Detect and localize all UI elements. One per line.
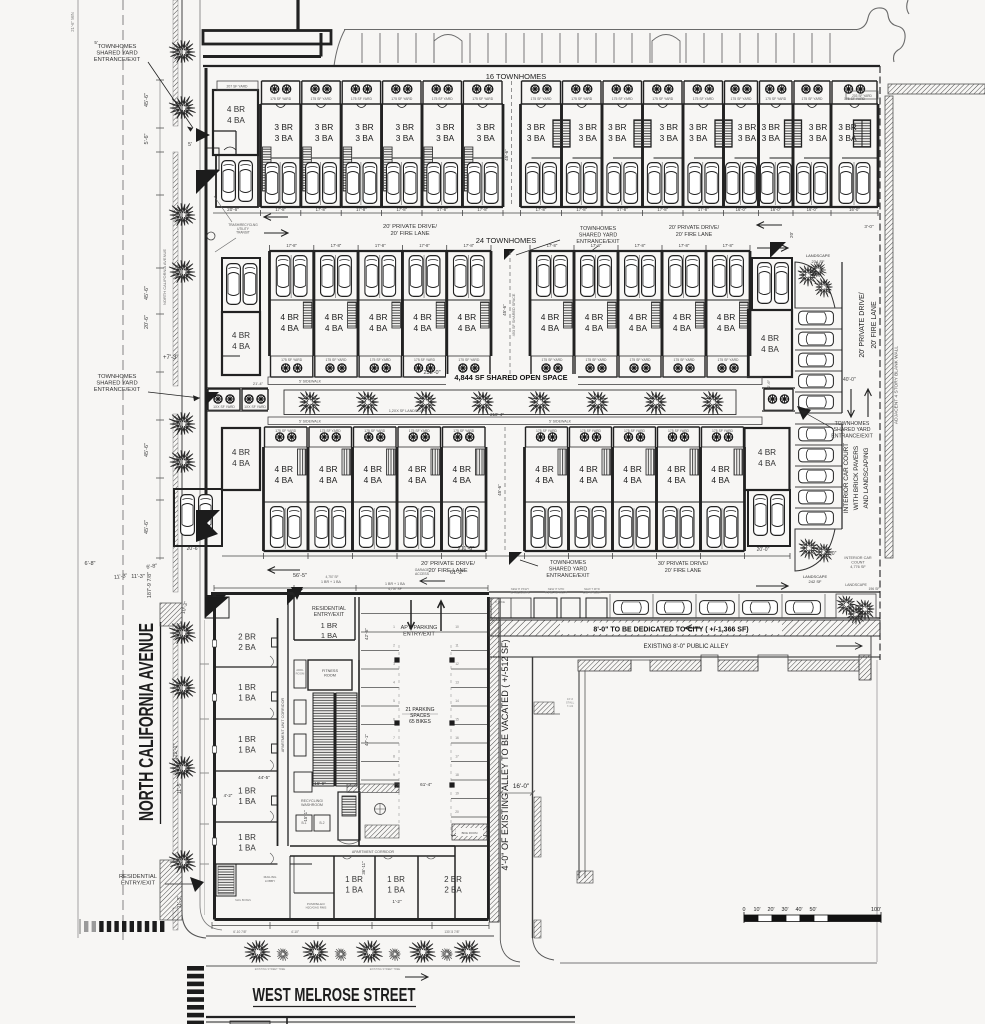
svg-text:WITH BRICK PAVERS: WITH BRICK PAVERS bbox=[853, 446, 860, 510]
svg-text:20'-6": 20'-6" bbox=[187, 546, 200, 552]
svg-text:175 SF YARD: 175 SF YARD bbox=[432, 97, 454, 101]
svg-text:1 BA: 1 BA bbox=[238, 694, 256, 703]
svg-text:3 BR: 3 BR bbox=[809, 122, 828, 132]
svg-text:56'-5": 56'-5" bbox=[293, 573, 307, 579]
svg-text:493 SF SHARED SPACE: 493 SF SHARED SPACE bbox=[512, 293, 516, 336]
svg-text:175 SF YARD: 175 SF YARD bbox=[586, 358, 608, 362]
svg-text:17'-8": 17'-8" bbox=[464, 243, 475, 248]
svg-text:16'-0": 16'-0" bbox=[849, 207, 860, 212]
svg-text:EXISTING STREET TREE: EXISTING STREET TREE bbox=[370, 967, 401, 971]
svg-text:APARTMENT UNIT CORRIDOR: APARTMENT UNIT CORRIDOR bbox=[281, 697, 285, 752]
svg-text:EMPTY SLOT: EMPTY SLOT bbox=[583, 590, 601, 594]
svg-text:8: 8 bbox=[393, 755, 395, 759]
svg-text:17'-8": 17'-8" bbox=[275, 207, 286, 212]
svg-text:175 SF YARD: 175 SF YARD bbox=[674, 358, 696, 362]
svg-text:44'-5": 44'-5" bbox=[258, 775, 270, 780]
svg-text:4 BR: 4 BR bbox=[541, 312, 560, 322]
svg-text:COUNT: COUNT bbox=[851, 560, 865, 564]
svg-text:1 BA: 1 BA bbox=[238, 746, 256, 755]
svg-text:4 BR: 4 BR bbox=[319, 464, 338, 474]
svg-text:NORTH CALIFORNIA AVENUE: NORTH CALIFORNIA AVENUE bbox=[162, 249, 167, 305]
svg-text:4 BR: 4 BR bbox=[232, 448, 250, 457]
svg-text:175 SF YARD: 175 SF YARD bbox=[458, 358, 480, 362]
svg-text:61'-4": 61'-4" bbox=[420, 782, 432, 787]
svg-text:4 BA: 4 BA bbox=[673, 323, 692, 333]
svg-text:11: 11 bbox=[455, 644, 459, 648]
svg-text:20'-0": 20'-0" bbox=[757, 547, 770, 553]
svg-text:130'-5 7/8": 130'-5 7/8" bbox=[444, 930, 459, 934]
svg-text:15: 15 bbox=[455, 718, 459, 722]
svg-text:4 BR: 4 BR bbox=[274, 464, 293, 474]
svg-text:1 BA: 1 BA bbox=[238, 844, 256, 853]
svg-text:4,776 SF: 4,776 SF bbox=[850, 565, 866, 569]
svg-text:2 BA: 2 BA bbox=[444, 886, 462, 895]
svg-text:175 SF YARD: 175 SF YARD bbox=[731, 97, 753, 101]
svg-text:4 BR: 4 BR bbox=[758, 448, 776, 457]
svg-text:17'-8": 17'-8" bbox=[617, 207, 628, 212]
svg-text:INTERIOR CAR: INTERIOR CAR bbox=[844, 556, 871, 560]
svg-text:4'-2": 4'-2" bbox=[224, 793, 233, 798]
svg-text:7-1/2: 7-1/2 bbox=[567, 704, 574, 708]
svg-text:175 SF YARD: 175 SF YARD bbox=[668, 429, 690, 433]
svg-text:20' PRIVATE DRIVE/: 20' PRIVATE DRIVE/ bbox=[421, 561, 475, 567]
svg-text:175 SF YARD: 175 SF YARD bbox=[718, 358, 740, 362]
svg-text:3 BA: 3 BA bbox=[809, 133, 828, 143]
svg-text:4 BR: 4 BR bbox=[629, 312, 648, 322]
svg-text:4,844 SF SHARED OPEN SPACE: 4,844 SF SHARED OPEN SPACE bbox=[454, 373, 567, 382]
svg-text:1 BA: 1 BA bbox=[345, 886, 363, 895]
svg-text:SHARED YARD: SHARED YARD bbox=[96, 51, 137, 57]
svg-text:5': 5' bbox=[188, 142, 192, 148]
svg-text:16'-2": 16'-2" bbox=[362, 942, 367, 953]
svg-text:WASHROOM: WASHROOM bbox=[301, 803, 323, 807]
svg-text:17'-8": 17'-8" bbox=[576, 207, 587, 212]
svg-text:16'-9": 16'-9" bbox=[314, 781, 326, 786]
svg-text:3 BR: 3 BR bbox=[608, 122, 627, 132]
svg-text:20: 20 bbox=[455, 810, 459, 814]
svg-text:3 BR: 3 BR bbox=[738, 122, 757, 132]
svg-text:9: 9 bbox=[393, 773, 395, 777]
svg-text:4 BR: 4 BR bbox=[413, 312, 432, 322]
svg-text:4 BA: 4 BA bbox=[408, 475, 427, 485]
svg-text:8'-0" TO BE DEDICATED TO CITY: 8'-0" TO BE DEDICATED TO CITY ( +/-1,366… bbox=[593, 627, 748, 634]
svg-text:45'-6": 45'-6" bbox=[144, 286, 150, 300]
svg-text:4 BA: 4 BA bbox=[579, 475, 598, 485]
svg-text:30' PRIVATE DRIVE/: 30' PRIVATE DRIVE/ bbox=[658, 561, 709, 567]
svg-text:16'-0": 16'-0" bbox=[807, 207, 818, 212]
svg-text:175 SF YARD: 175 SF YARD bbox=[311, 97, 333, 101]
svg-text:WEST MELROSE STREET: WEST MELROSE STREET bbox=[253, 985, 416, 1005]
svg-text:1 BA: 1 BA bbox=[387, 886, 405, 895]
svg-text:2 BR: 2 BR bbox=[444, 875, 462, 884]
svg-text:TOWNHOMES: TOWNHOMES bbox=[98, 44, 137, 50]
svg-text:FITNESS: FITNESS bbox=[322, 669, 339, 673]
svg-text:RESIDENTIAL: RESIDENTIAL bbox=[119, 874, 158, 880]
svg-text:30': 30' bbox=[781, 907, 788, 913]
svg-text:45'-6": 45'-6" bbox=[144, 443, 150, 457]
svg-text:175 SF YARD: 175 SF YARD bbox=[652, 97, 674, 101]
svg-text:21'-6" MIN: 21'-6" MIN bbox=[70, 12, 75, 32]
svg-text:17'-8": 17'-8" bbox=[331, 243, 342, 248]
svg-text:4 BR: 4 BR bbox=[711, 464, 730, 474]
svg-text:5' SIDEWALK: 5' SIDEWALK bbox=[549, 420, 572, 424]
svg-text:17'-8": 17'-8" bbox=[396, 207, 407, 212]
svg-text:18: 18 bbox=[455, 773, 459, 777]
svg-text:3 BA: 3 BA bbox=[579, 133, 598, 143]
svg-text:11'-3": 11'-3" bbox=[131, 574, 145, 580]
svg-text:4 BR: 4 BR bbox=[579, 464, 598, 474]
svg-text:1 BA: 1 BA bbox=[238, 797, 256, 806]
svg-text:10': 10' bbox=[753, 907, 760, 913]
svg-text:4 BR: 4 BR bbox=[717, 312, 736, 322]
svg-text:1 BR: 1 BR bbox=[321, 621, 338, 630]
svg-text:5' SIDEWALK: 5' SIDEWALK bbox=[299, 420, 322, 424]
svg-text:1 BR: 1 BR bbox=[238, 683, 256, 692]
svg-text:4: 4 bbox=[393, 681, 395, 685]
svg-text:2: 2 bbox=[393, 644, 395, 648]
svg-text:TRANSIT: TRANSIT bbox=[236, 231, 250, 235]
svg-text:234 SF: 234 SF bbox=[812, 259, 825, 264]
svg-text:14: 14 bbox=[455, 699, 459, 703]
svg-text:1XX SF YARD: 1XX SF YARD bbox=[213, 405, 235, 409]
svg-text:20': 20' bbox=[789, 232, 794, 238]
svg-text:11'-5": 11'-5" bbox=[177, 782, 183, 795]
svg-text:4 BA: 4 BA bbox=[275, 475, 294, 485]
svg-text:4 BR: 4 BR bbox=[761, 334, 779, 343]
svg-text:3 BA: 3 BA bbox=[275, 133, 294, 143]
svg-text:22'-6": 22'-6" bbox=[766, 379, 771, 390]
svg-text:175 SF YARD: 175 SF YARD bbox=[391, 97, 413, 101]
svg-text:242 SF: 242 SF bbox=[809, 579, 822, 584]
svg-text:175 SF YARD: 175 SF YARD bbox=[612, 97, 634, 101]
svg-text:20' PRIVATE DRIVE/: 20' PRIVATE DRIVE/ bbox=[383, 224, 437, 230]
svg-text:4 BA: 4 BA bbox=[711, 475, 730, 485]
svg-text:45'-6": 45'-6" bbox=[502, 304, 507, 316]
svg-text:20' FIRE LANE: 20' FIRE LANE bbox=[871, 301, 878, 349]
svg-text:4 BA: 4 BA bbox=[761, 345, 779, 354]
svg-text:175 SF YARD: 175 SF YARD bbox=[802, 97, 824, 101]
svg-text:175 SF YARD: 175 SF YARD bbox=[414, 358, 436, 362]
svg-text:36'-11": 36'-11" bbox=[361, 861, 366, 875]
svg-text:3 BA: 3 BA bbox=[738, 133, 757, 143]
svg-text:ENTRY/EXIT: ENTRY/EXIT bbox=[314, 612, 345, 618]
svg-text:4 BA: 4 BA bbox=[369, 323, 388, 333]
svg-text:4,757 SF: 4,757 SF bbox=[388, 587, 402, 591]
svg-text:17'-8": 17'-8" bbox=[316, 207, 327, 212]
svg-text:3 BA: 3 BA bbox=[436, 133, 455, 143]
svg-text:3 BR: 3 BR bbox=[315, 122, 334, 132]
svg-text:17'-8": 17'-8" bbox=[419, 243, 430, 248]
svg-text:45'-6": 45'-6" bbox=[504, 149, 509, 161]
svg-text:17'-8": 17'-8" bbox=[657, 207, 668, 212]
svg-text:20' FIRE LANE: 20' FIRE LANE bbox=[665, 568, 702, 574]
svg-text:175 SF YARD: 175 SF YARD bbox=[712, 429, 734, 433]
svg-text:MAIL BOXES: MAIL BOXES bbox=[235, 898, 251, 902]
svg-text:45'-6": 45'-6" bbox=[144, 520, 150, 534]
svg-text:175 SF YARD: 175 SF YARD bbox=[351, 97, 373, 101]
svg-text:H2O/GAS RMS: H2O/GAS RMS bbox=[306, 906, 327, 910]
svg-text:65 BIKES: 65 BIKES bbox=[409, 719, 431, 725]
svg-text:211'-6": 211'-6" bbox=[458, 546, 475, 552]
svg-text:4'-0" OF EXISTING ALLEY TO BE: 4'-0" OF EXISTING ALLEY TO BE VACATED ( … bbox=[500, 640, 510, 871]
svg-text:20' FIRE LANE: 20' FIRE LANE bbox=[390, 231, 429, 237]
svg-text:4 BA: 4 BA bbox=[227, 116, 245, 125]
svg-text:3 BA: 3 BA bbox=[477, 133, 496, 143]
svg-text:TOWNHOMES: TOWNHOMES bbox=[98, 374, 137, 380]
svg-text:122'-1": 122'-1" bbox=[173, 743, 179, 760]
svg-text:175 SF YARD: 175 SF YARD bbox=[370, 358, 392, 362]
svg-text:TRASH UPRGHT: TRASH UPRGHT bbox=[545, 590, 567, 594]
svg-text:6'-10 7/8": 6'-10 7/8" bbox=[233, 930, 246, 934]
svg-text:207 SF YARD: 207 SF YARD bbox=[227, 85, 249, 89]
svg-text:LOBBY: LOBBY bbox=[265, 879, 275, 883]
svg-text:45'-6": 45'-6" bbox=[497, 484, 502, 496]
svg-text:203 SF YARD: 203 SF YARD bbox=[852, 94, 872, 98]
svg-text:ENTRANCE/EXIT: ENTRANCE/EXIT bbox=[94, 57, 141, 63]
svg-text:1 BA: 1 BA bbox=[321, 631, 337, 640]
svg-text:3 BR: 3 BR bbox=[761, 122, 780, 132]
svg-text:1 BR: 1 BR bbox=[238, 833, 256, 842]
svg-text:3 BA: 3 BA bbox=[527, 133, 546, 143]
svg-text:17: 17 bbox=[455, 755, 459, 759]
svg-text:40': 40' bbox=[795, 907, 802, 913]
svg-text:24 TOWNHOMES: 24 TOWNHOMES bbox=[476, 236, 537, 245]
svg-text:1 BR: 1 BR bbox=[345, 875, 363, 884]
svg-text:20'-6": 20'-6" bbox=[144, 315, 150, 329]
svg-text:4 BR: 4 BR bbox=[673, 312, 692, 322]
svg-text:17'-8": 17'-8" bbox=[286, 243, 297, 248]
svg-text:ENTRY/EXIT: ENTRY/EXIT bbox=[121, 881, 155, 887]
svg-text:SPACE LIMITS: SPACE LIMITS bbox=[510, 590, 529, 594]
svg-text:APARTMENT CORRIDOR: APARTMENT CORRIDOR bbox=[352, 850, 395, 854]
svg-text:SHARED YARD: SHARED YARD bbox=[549, 566, 588, 572]
svg-text:4 BR: 4 BR bbox=[369, 312, 388, 322]
svg-text:SHARED YARD: SHARED YARD bbox=[96, 381, 137, 387]
svg-text:4 BA: 4 BA bbox=[232, 342, 250, 351]
svg-text:BIKE ROOM: BIKE ROOM bbox=[462, 831, 479, 835]
svg-text:4 BA: 4 BA bbox=[458, 323, 477, 333]
svg-text:4,757 SF: 4,757 SF bbox=[326, 575, 339, 579]
svg-text:AND LANDSCAPING: AND LANDSCAPING bbox=[863, 447, 870, 508]
svg-text:1 BR: 1 BR bbox=[238, 735, 256, 744]
svg-text:61'-2": 61'-2" bbox=[450, 570, 464, 576]
svg-text:1XX SF YARD: 1XX SF YARD bbox=[244, 405, 266, 409]
svg-text:175 SF YARD: 175 SF YARD bbox=[531, 97, 553, 101]
svg-text:16'-0": 16'-0" bbox=[770, 207, 781, 212]
svg-text:EXISTING STREET TREE: EXISTING STREET TREE bbox=[255, 967, 286, 971]
svg-text:19: 19 bbox=[455, 792, 459, 796]
svg-text:175 SF YARD: 175 SF YARD bbox=[409, 429, 431, 433]
svg-text:ENTRANCE/EXIT: ENTRANCE/EXIT bbox=[94, 387, 141, 393]
svg-text:1 BR + 1 BA: 1 BR + 1 BA bbox=[321, 580, 341, 584]
svg-text:4 BR: 4 BR bbox=[535, 464, 554, 474]
svg-text:3 BR: 3 BR bbox=[476, 122, 495, 132]
svg-text:16: 16 bbox=[455, 736, 459, 740]
svg-text:B-2: B-2 bbox=[320, 821, 325, 825]
svg-text:4 BR: 4 BR bbox=[585, 312, 604, 322]
svg-text:INTERIOR CAR COURT: INTERIOR CAR COURT bbox=[843, 443, 850, 513]
svg-text:3 BA: 3 BA bbox=[608, 133, 627, 143]
svg-text:+7'-3": +7'-3" bbox=[163, 355, 178, 361]
svg-text:6'-8": 6'-8" bbox=[85, 561, 96, 567]
svg-text:ROOM: ROOM bbox=[296, 671, 305, 675]
svg-text:175 SF YARD: 175 SF YARD bbox=[281, 358, 303, 362]
svg-text:4 BA: 4 BA bbox=[364, 475, 383, 485]
svg-text:20' PRIVATE DRIVE/: 20' PRIVATE DRIVE/ bbox=[859, 292, 866, 357]
svg-text:5: 5 bbox=[393, 699, 395, 703]
svg-text:TOWNHOMES: TOWNHOMES bbox=[580, 226, 617, 232]
svg-text:40'-0": 40'-0" bbox=[843, 377, 856, 383]
svg-text:175 SF YARD: 175 SF YARD bbox=[571, 97, 593, 101]
svg-text:5' SIDEWALK: 5' SIDEWALK bbox=[299, 380, 322, 384]
svg-text:175 SF YARD: 175 SF YARD bbox=[275, 429, 297, 433]
svg-text:4 BR: 4 BR bbox=[325, 312, 344, 322]
svg-text:ENTRANCE/EXIT: ENTRANCE/EXIT bbox=[546, 573, 590, 579]
svg-text:4'-10": 4'-10" bbox=[291, 930, 299, 934]
svg-text:3 BR: 3 BR bbox=[659, 122, 678, 132]
svg-text:3 BA: 3 BA bbox=[660, 133, 679, 143]
svg-text:175 SF YARD: 175 SF YARD bbox=[580, 429, 602, 433]
svg-text:17'-8": 17'-8" bbox=[437, 207, 448, 212]
svg-text:175 SF YARD: 175 SF YARD bbox=[536, 429, 558, 433]
svg-text:3 BR: 3 BR bbox=[436, 122, 455, 132]
svg-text:3 BR: 3 BR bbox=[527, 122, 546, 132]
svg-text:17'-8": 17'-8" bbox=[679, 243, 690, 248]
svg-text:3 BR: 3 BR bbox=[274, 122, 293, 132]
svg-text:APT. PARKING: APT. PARKING bbox=[401, 625, 438, 631]
svg-text:175 SF YARD: 175 SF YARD bbox=[364, 429, 386, 433]
svg-text:TOWNHOMES: TOWNHOMES bbox=[835, 421, 870, 427]
svg-text:4 BA: 4 BA bbox=[667, 475, 686, 485]
svg-text:6: 6 bbox=[393, 718, 395, 722]
svg-text:2 BA: 2 BA bbox=[238, 643, 256, 652]
svg-text:RESIDENTIAL: RESIDENTIAL bbox=[312, 606, 346, 612]
svg-text:TOWNHOMES: TOWNHOMES bbox=[550, 560, 587, 566]
svg-text:ROOM: ROOM bbox=[324, 674, 336, 678]
svg-text:3 BR: 3 BR bbox=[395, 122, 414, 132]
svg-text:4 BA: 4 BA bbox=[585, 323, 604, 333]
svg-text:252'-0": 252'-0" bbox=[423, 370, 440, 376]
svg-text:210'-4": 210'-4" bbox=[490, 412, 504, 417]
svg-text:SHARED YARD: SHARED YARD bbox=[579, 232, 618, 238]
svg-text:16'-0": 16'-0" bbox=[513, 783, 529, 790]
svg-text:7: 7 bbox=[393, 736, 395, 740]
svg-text:4 BR: 4 BR bbox=[363, 464, 382, 474]
svg-text:3: 3 bbox=[393, 662, 395, 666]
svg-text:175 SF YARD: 175 SF YARD bbox=[765, 97, 787, 101]
svg-text:175 SF YARD: 175 SF YARD bbox=[624, 429, 646, 433]
svg-text:NORTH CALIFORNIA AVENUE: NORTH CALIFORNIA AVENUE bbox=[136, 623, 158, 821]
svg-text:ACCESS: ACCESS bbox=[415, 572, 430, 576]
svg-text:ENTRY/EXIT: ENTRY/EXIT bbox=[403, 631, 435, 637]
svg-text:175 SF YARD: 175 SF YARD bbox=[630, 358, 652, 362]
svg-text:4 BA: 4 BA bbox=[281, 323, 300, 333]
svg-text:4 BR: 4 BR bbox=[458, 312, 477, 322]
svg-text:3 BR: 3 BR bbox=[355, 122, 374, 132]
svg-text:17'-8": 17'-8" bbox=[375, 243, 386, 248]
svg-text:175 SF YARD: 175 SF YARD bbox=[693, 97, 715, 101]
svg-text:196 SF: 196 SF bbox=[869, 587, 880, 591]
svg-text:21'-4": 21'-4" bbox=[253, 381, 264, 386]
svg-text:4 BA: 4 BA bbox=[453, 475, 472, 485]
svg-text:17'-8": 17'-8" bbox=[356, 207, 367, 212]
svg-text:175 SF YARD: 175 SF YARD bbox=[472, 97, 494, 101]
svg-text:4 BA: 4 BA bbox=[413, 323, 432, 333]
svg-text:15'-1": 15'-1" bbox=[303, 810, 308, 822]
svg-text:3 BR: 3 BR bbox=[578, 122, 597, 132]
svg-text:17'-8": 17'-8" bbox=[698, 207, 709, 212]
svg-text:17'-8": 17'-8" bbox=[477, 207, 488, 212]
svg-text:5'-6": 5'-6" bbox=[144, 133, 150, 144]
svg-text:50': 50' bbox=[809, 907, 816, 913]
svg-text:20'-6": 20'-6" bbox=[227, 207, 239, 212]
svg-text:EXISTING 8'-0" PUBLIC ALLEY: EXISTING 8'-0" PUBLIC ALLEY bbox=[644, 644, 729, 650]
svg-text:12: 12 bbox=[455, 662, 459, 666]
svg-text:4 BR: 4 BR bbox=[408, 464, 427, 474]
svg-text:4 BR: 4 BR bbox=[227, 105, 245, 114]
svg-text:47'-1": 47'-1" bbox=[364, 734, 370, 747]
svg-text:3 BA: 3 BA bbox=[355, 133, 374, 143]
svg-text:4 BA: 4 BA bbox=[319, 475, 338, 485]
svg-text:4 BR: 4 BR bbox=[667, 464, 686, 474]
svg-text:ADJACENT 4 STORY BLANK WALL: ADJACENT 4 STORY BLANK WALL bbox=[894, 346, 900, 424]
svg-text:4 BA: 4 BA bbox=[232, 459, 250, 468]
svg-text:41'-0": 41'-0" bbox=[824, 551, 837, 557]
svg-text:4 BA: 4 BA bbox=[325, 323, 344, 333]
svg-text:45'-6": 45'-6" bbox=[144, 93, 150, 107]
svg-text:4 BA: 4 BA bbox=[535, 475, 554, 485]
svg-text:17'-8": 17'-8" bbox=[536, 207, 547, 212]
svg-text:3'-0": 3'-0" bbox=[864, 224, 874, 229]
svg-text:175 SF YARD: 175 SF YARD bbox=[320, 429, 342, 433]
svg-text:3 BA: 3 BA bbox=[315, 133, 334, 143]
svg-text:175 SF YARD: 175 SF YARD bbox=[325, 358, 347, 362]
svg-text:4 BA: 4 BA bbox=[541, 323, 560, 333]
svg-text:1 BR: 1 BR bbox=[387, 875, 405, 884]
svg-text:4 BR: 4 BR bbox=[280, 312, 299, 322]
svg-text:175 SF YARD: 175 SF YARD bbox=[542, 358, 564, 362]
svg-text:4 BR: 4 BR bbox=[623, 464, 642, 474]
svg-text:100': 100' bbox=[871, 907, 881, 913]
svg-text:4 BR: 4 BR bbox=[232, 331, 250, 340]
svg-text:3 BA: 3 BA bbox=[396, 133, 415, 143]
svg-text:0: 0 bbox=[743, 907, 746, 913]
svg-text:13: 13 bbox=[455, 681, 459, 685]
svg-text:1: 1 bbox=[393, 625, 395, 629]
svg-text:1 BR + 1 BA: 1 BR + 1 BA bbox=[385, 582, 405, 586]
svg-text:ENTRANCE/EXIT: ENTRANCE/EXIT bbox=[576, 239, 620, 245]
svg-text:4 BA: 4 BA bbox=[623, 475, 642, 485]
svg-text:3 BA: 3 BA bbox=[762, 133, 781, 143]
svg-text:42'-6": 42'-6" bbox=[364, 628, 370, 641]
svg-text:3 BA: 3 BA bbox=[689, 133, 708, 143]
svg-text:16'-0": 16'-0" bbox=[736, 207, 747, 212]
svg-text:1 BR: 1 BR bbox=[238, 787, 256, 796]
svg-text:SHARED YARD: SHARED YARD bbox=[834, 427, 871, 433]
svg-text:3 BR: 3 BR bbox=[689, 122, 708, 132]
svg-text:17'-8": 17'-8" bbox=[635, 243, 646, 248]
svg-text:4 BA: 4 BA bbox=[758, 459, 776, 468]
svg-text:LANDSCAPE: LANDSCAPE bbox=[806, 253, 831, 258]
svg-text:4 BA: 4 BA bbox=[629, 323, 648, 333]
svg-text:ENTRANCE/EXIT: ENTRANCE/EXIT bbox=[831, 433, 873, 439]
svg-text:10: 10 bbox=[455, 625, 459, 629]
svg-text:187'-9 7/8": 187'-9 7/8" bbox=[147, 572, 153, 598]
svg-text:17'-8": 17'-8" bbox=[723, 243, 734, 248]
svg-text:20' PRIVATE DRIVE/: 20' PRIVATE DRIVE/ bbox=[669, 225, 720, 231]
svg-text:1,2XX SF LANDSCAPE: 1,2XX SF LANDSCAPE bbox=[389, 409, 428, 413]
svg-text:LANDSCAPE: LANDSCAPE bbox=[845, 583, 867, 587]
